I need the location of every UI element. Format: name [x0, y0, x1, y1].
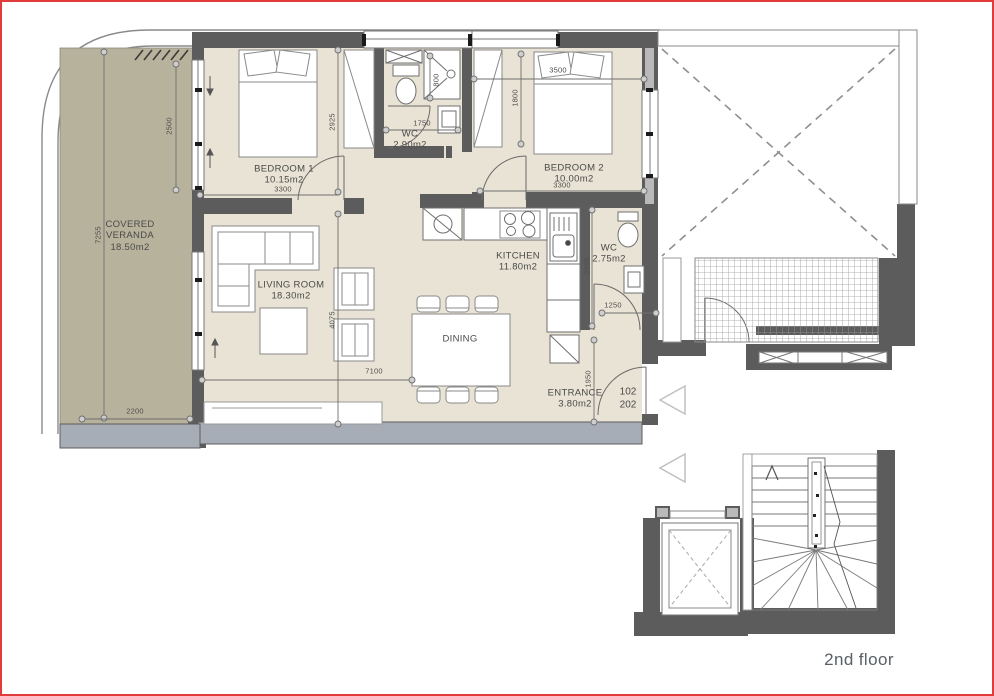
coffee-table	[260, 308, 307, 354]
label-living: LIVING ROOM 18.30m2	[258, 280, 325, 303]
floorplan-drawing	[2, 2, 994, 696]
dim-veranda-height: 7255	[94, 226, 103, 244]
grating-left-wall	[663, 258, 681, 342]
dim-wc2-door: 1250	[604, 301, 622, 310]
entrance-name: ENTRANCE	[548, 388, 603, 399]
floorplan-page: COVERED VERANDA 18.50m2 BEDROOM 1 10.15m…	[0, 0, 994, 696]
living-name: LIVING ROOM	[258, 280, 325, 291]
bed-2	[534, 52, 612, 154]
corridor-arrow-1	[660, 386, 685, 414]
entrance-area: 3.80m2	[548, 399, 603, 410]
dim-bedroom2-top: 3500	[549, 66, 567, 75]
label-veranda: COVERED VERANDA 18.50m2	[105, 219, 154, 253]
corridor-arrow-2	[660, 454, 685, 482]
low-cabinet	[204, 402, 382, 424]
unit-number-1: 102	[620, 387, 637, 400]
wc2-area: 2.75m2	[592, 254, 626, 265]
kitchen-area: 11.80m2	[496, 262, 540, 273]
dim-wc1-width: 1750	[413, 119, 431, 128]
dim-bedroom2-depth: 1800	[511, 89, 520, 107]
wc1-name: WC	[393, 129, 427, 140]
x-brace-rail	[759, 352, 887, 363]
dim-entrance-depth: 1950	[584, 370, 593, 388]
bottom-walls	[60, 422, 642, 448]
elevator	[662, 511, 738, 615]
armchair-1	[334, 268, 374, 310]
dim-bedroom1-width: 3300	[274, 185, 292, 194]
wardrobe-2	[474, 50, 502, 147]
grating	[695, 258, 878, 342]
floor-label: 2nd floor	[824, 650, 894, 670]
dining-set	[412, 296, 510, 403]
label-entrance: ENTRANCE 3.80m2	[548, 388, 603, 411]
wardrobe-1	[344, 50, 374, 148]
staircase	[743, 454, 877, 610]
dim-bedroom1-height: 2925	[328, 113, 337, 131]
label-dining: DINING	[442, 333, 477, 344]
wc1-area: 2.90m2	[393, 140, 427, 151]
void-x	[662, 49, 895, 256]
bedroom2-name: BEDROOM 2	[544, 163, 604, 174]
veranda-area: 18.50m2	[105, 242, 154, 253]
veranda-line1: COVERED	[105, 219, 154, 230]
void-right-wall	[899, 30, 917, 204]
dim-bedroom2-width: 3300	[553, 181, 571, 190]
dim-kitchen-depth: 2325	[583, 257, 592, 275]
dining-name: DINING	[442, 333, 477, 344]
dim-living-height: 4075	[328, 311, 337, 329]
armchair-2	[334, 319, 374, 361]
dim-veranda-width: 2200	[126, 407, 144, 416]
unit-number-2: 202	[620, 399, 637, 412]
label-wc1: WC 2.90m2	[393, 129, 427, 152]
kitchen-name: KITCHEN	[496, 251, 540, 262]
wc2-name: WC	[592, 243, 626, 254]
label-kitchen: KITCHEN 11.80m2	[496, 251, 540, 274]
unit-numbers: 102 202	[620, 387, 637, 412]
dim-veranda-window: 2500	[165, 117, 174, 135]
void-top-wall	[658, 30, 917, 46]
living-area: 18.30m2	[258, 291, 325, 302]
label-bedroom1: BEDROOM 1 10.15m2	[254, 164, 314, 187]
veranda-line2: VERANDA	[105, 230, 154, 241]
bedroom1-name: BEDROOM 1	[254, 164, 314, 175]
dim-living-width: 7100	[365, 367, 383, 376]
label-wc2: WC 2.75m2	[592, 243, 626, 266]
dim-shower-width: 800	[432, 73, 441, 86]
